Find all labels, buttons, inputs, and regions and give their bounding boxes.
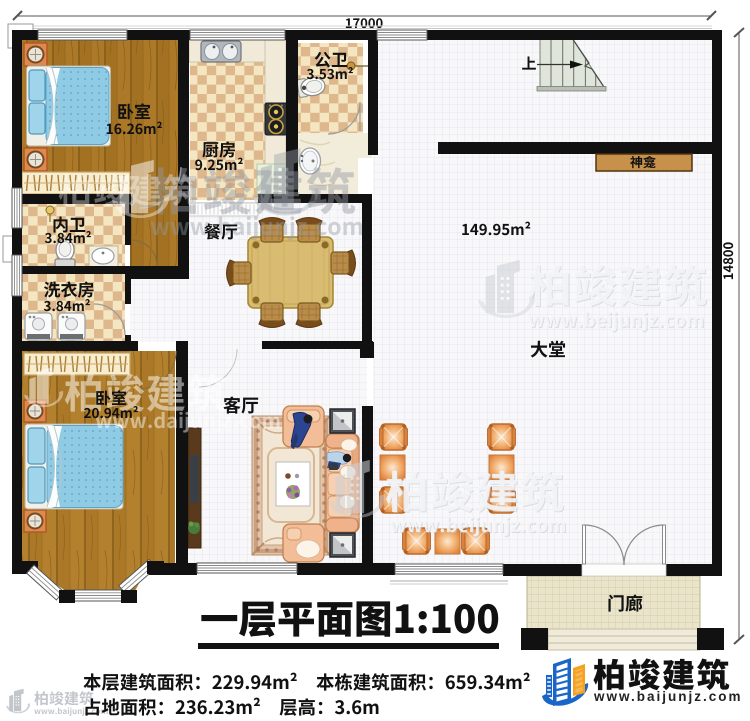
svg-text:www.baijunjz.com: www.baijunjz.com: [593, 689, 743, 704]
